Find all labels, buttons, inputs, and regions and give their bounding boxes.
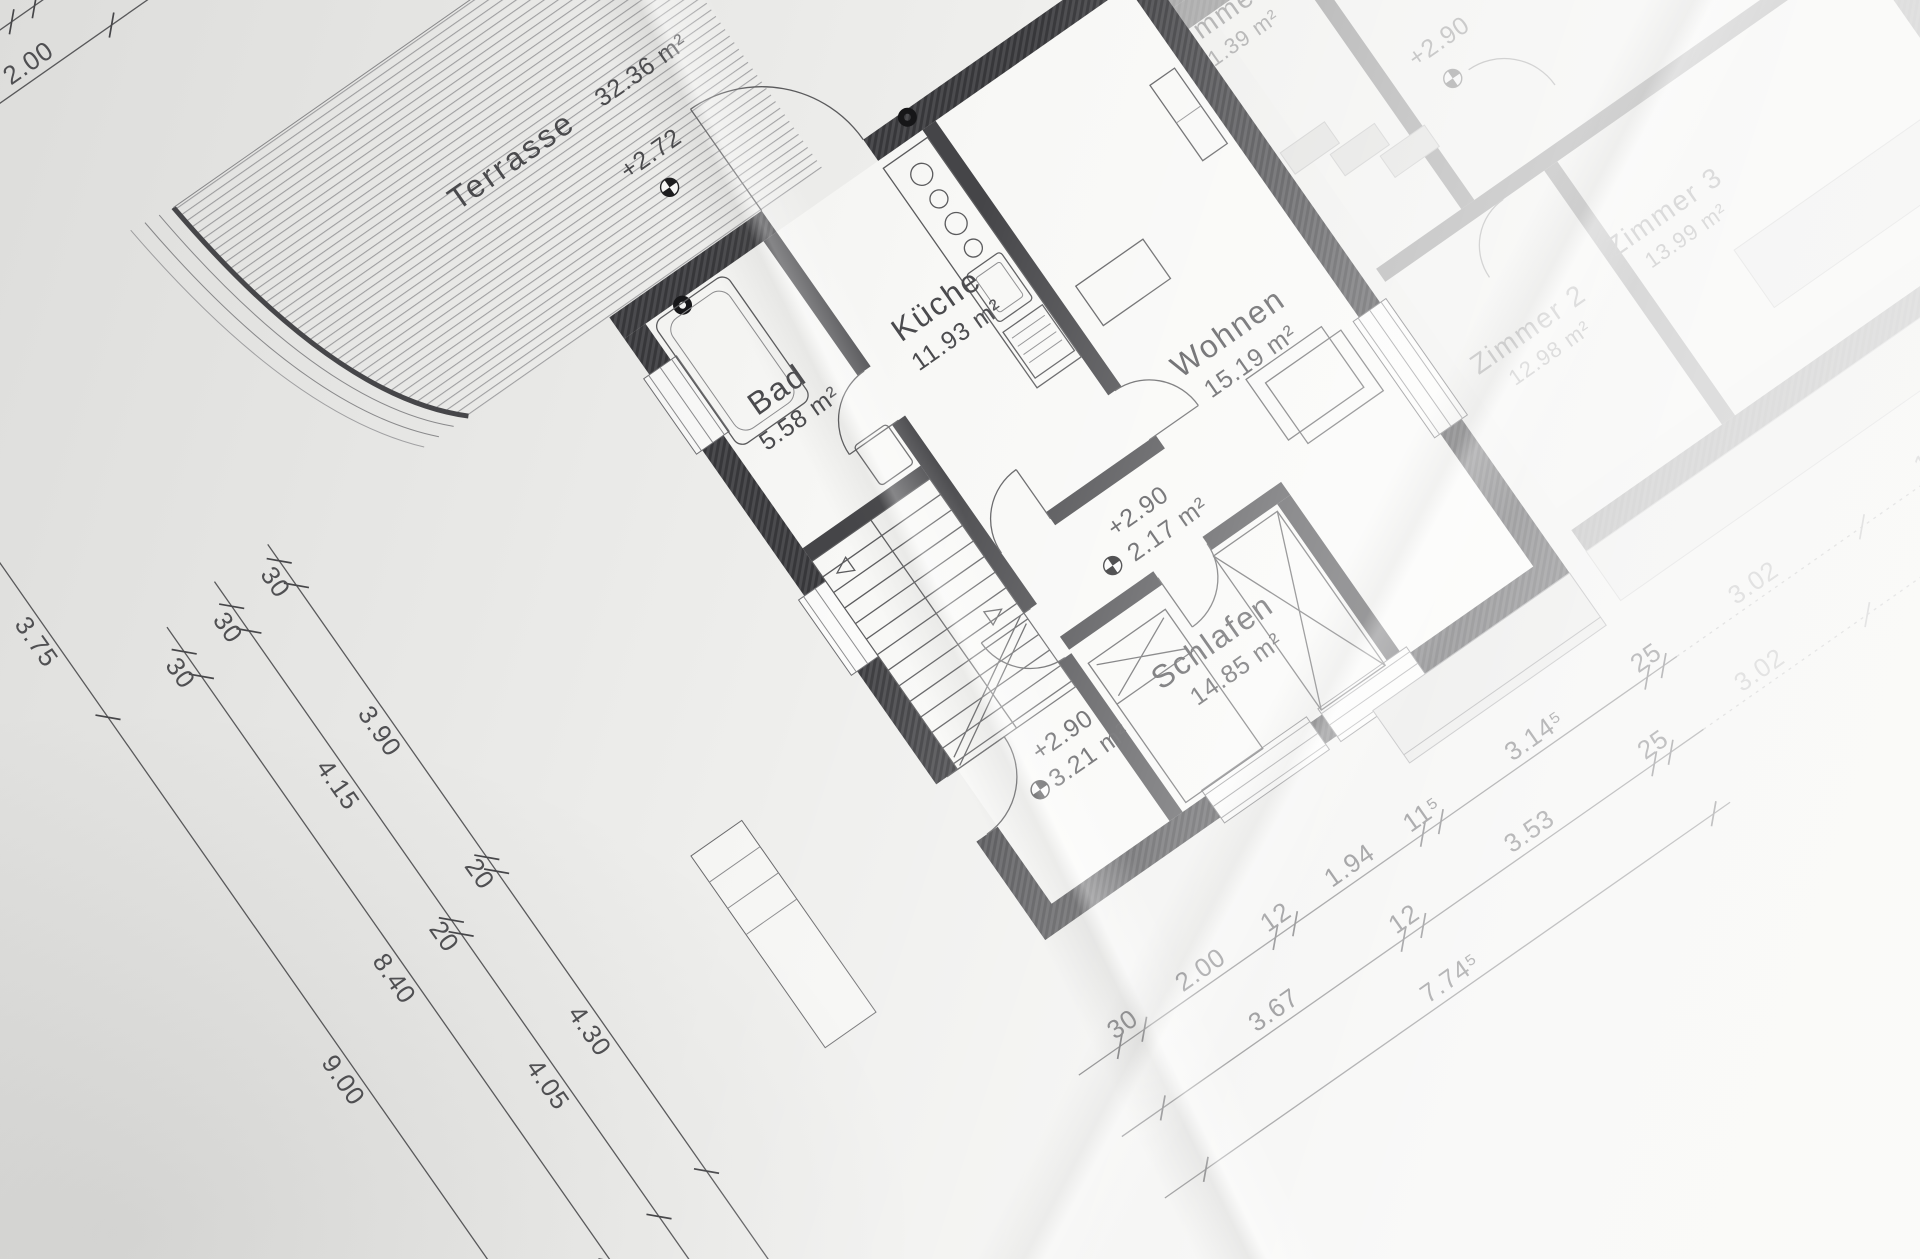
dim-label: 3.67 (1243, 982, 1305, 1038)
dim-label: 8.40 (367, 947, 423, 1009)
dim-label: 4.30 (562, 1000, 618, 1062)
dim-tick (0, 0, 47, 34)
dim-label: 30 (207, 606, 249, 649)
dim-label: 4.15 (310, 754, 366, 816)
dim-label: 9.00 (316, 1049, 372, 1111)
dim-label: 25 (1631, 723, 1674, 765)
dim-label: 3.14⁵ (1499, 704, 1571, 767)
dim-label: 4.05 (520, 1054, 576, 1116)
floorplan-drawing: Zimmer 11.39 m² Zimmer 2 12.98 m² Zimmer… (0, 0, 1920, 1259)
dim-label: 7.74⁵ (1414, 946, 1486, 1009)
dim-tick (99, 12, 124, 37)
dim-label: 30 (1101, 1003, 1144, 1045)
dim-label: 25 (1624, 636, 1667, 678)
dim-label: 3.02 (1728, 642, 1790, 698)
dim-line (0, 0, 241, 217)
dim-label: 3.02 (1722, 554, 1784, 610)
dim-label: 12 (1382, 897, 1425, 939)
dim-label: 3.90 (352, 700, 408, 762)
entry-walkway (691, 820, 876, 1047)
blueprint-photo: Zimmer 11.39 m² Zimmer 2 12.98 m² Zimmer… (0, 0, 1920, 1259)
dim-line (1165, 802, 1730, 1198)
dim-label: 30 (255, 561, 297, 604)
dim-label: 30 (160, 652, 202, 695)
dim-label: 3.53 (1498, 803, 1560, 859)
dim-label: 1.94 (1318, 837, 1380, 893)
dim-label: 12 (1254, 896, 1297, 938)
dim-line (167, 627, 792, 1259)
dim-label: 3.75 (9, 611, 65, 673)
dim-label: 2.00 (1169, 941, 1231, 997)
dim-label: 10 (1908, 438, 1920, 480)
